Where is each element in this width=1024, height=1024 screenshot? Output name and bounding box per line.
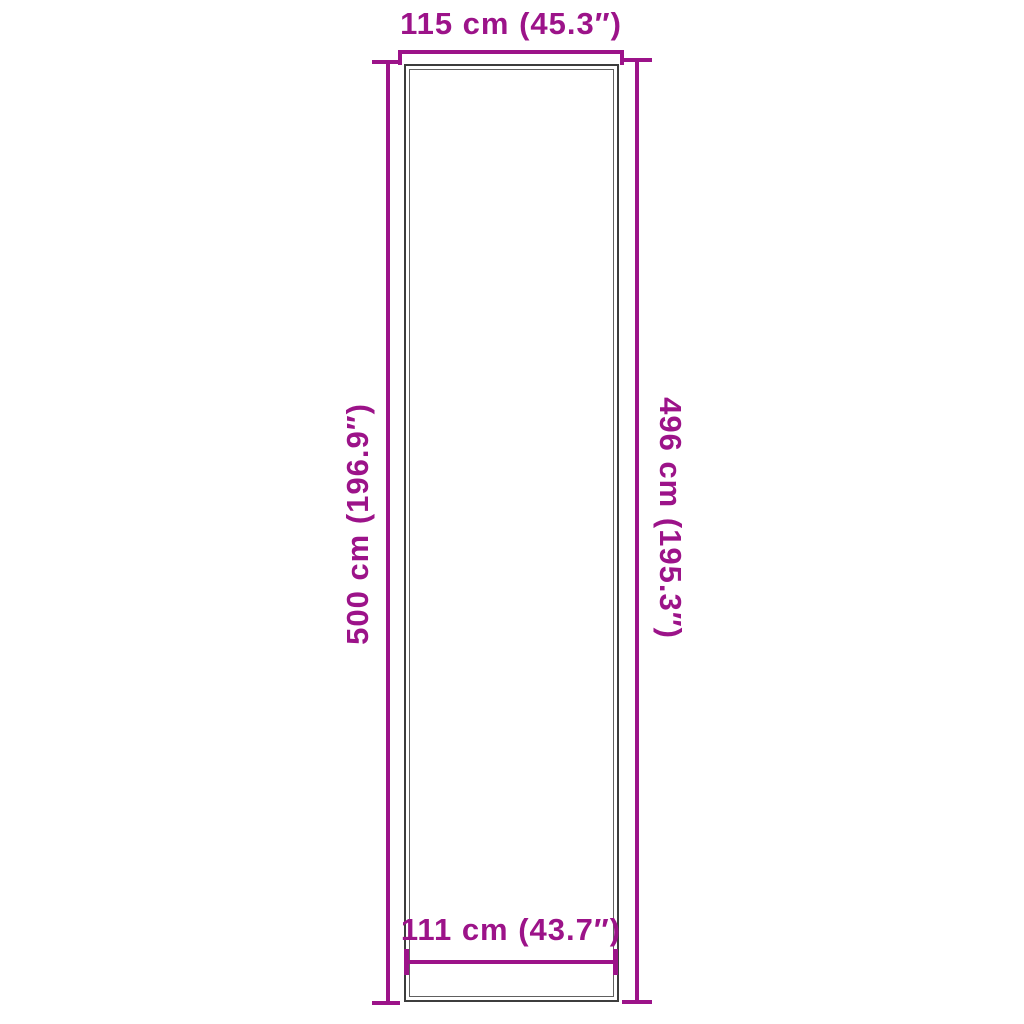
product-outline	[404, 64, 619, 1002]
dimension-tick-right-top	[622, 58, 652, 62]
dimension-diagram: 115 cm (45.3″) 500 cm (196.9″) 496 cm (1…	[0, 0, 1024, 1024]
dimension-line-top	[398, 50, 624, 54]
dimension-tick-left-top	[372, 60, 400, 64]
product-inner-border	[409, 69, 614, 997]
dimension-tick-right-bottom	[622, 1000, 652, 1004]
dimension-label-right-height: 496 cm (195.3″)	[652, 397, 688, 639]
dimension-label-top-width: 115 cm (45.3″)	[398, 6, 624, 42]
dimension-tick-bottom-right	[613, 949, 618, 975]
dimension-tick-left-bottom	[372, 1001, 400, 1005]
dimension-line-left	[386, 60, 390, 1005]
dimension-line-right	[635, 58, 639, 1004]
dimension-label-bottom-width: 111 cm (43.7″)	[398, 912, 624, 948]
dimension-label-left-height: 500 cm (196.9″)	[340, 403, 376, 645]
dimension-tick-bottom-left	[404, 949, 409, 975]
dimension-line-bottom	[406, 960, 616, 964]
